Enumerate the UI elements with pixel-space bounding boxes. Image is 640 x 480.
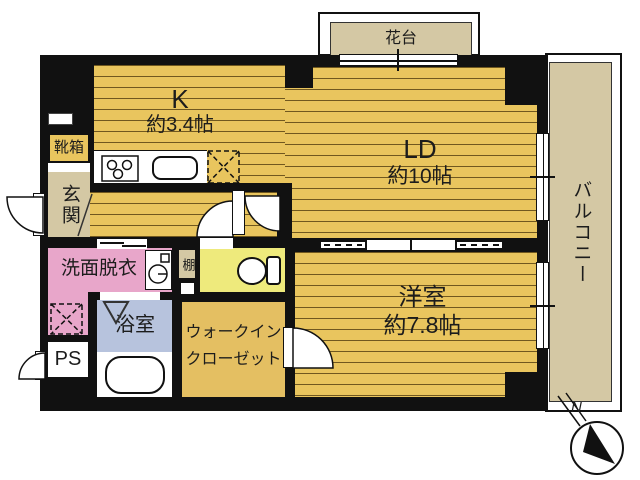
living-dining-name: LD [403, 135, 436, 165]
kitchen-name: K [171, 85, 188, 115]
wall-pillar-top-left [285, 67, 313, 88]
sliding-door-track [460, 244, 499, 246]
compass-icon [552, 388, 640, 480]
shelf-label: 棚 [180, 258, 195, 271]
balcony: バルコニー [549, 62, 612, 402]
refrigerator-space [207, 150, 240, 184]
western-room-size: 約7.8帖 [384, 312, 462, 338]
washroom-door-line-2 [122, 245, 146, 247]
washroom-door-gap [97, 239, 147, 249]
sliding-door-track [324, 244, 362, 246]
window-western-tick [530, 305, 555, 307]
walk-in-closet-line1: ウォークイン [185, 319, 281, 346]
sink-icon [152, 156, 198, 180]
toilet-icon [232, 252, 284, 290]
wall-pillar-top-right [505, 67, 537, 105]
stove-icon [101, 155, 139, 182]
shoe-box: 靴箱 [48, 133, 90, 163]
pipe-space: PS [48, 342, 88, 377]
western-room-name: 洋室 [399, 284, 447, 312]
closet-door-arc [292, 326, 336, 370]
floor-plan: 花台 バルコニー K 約3.4帖 LD 約10帖 玄関 [0, 0, 640, 480]
entrance-top-strip [48, 163, 90, 172]
wall-western-corner [505, 372, 537, 397]
entrance-door-arc [5, 196, 45, 236]
washroom-label: 洗面脱衣 [48, 256, 150, 282]
bath-door-gap [100, 292, 160, 300]
flower-stand: 花台 [330, 22, 472, 56]
walk-in-closet-label: ウォークイン クローゼット [183, 316, 284, 376]
washroom-name: 洗面脱衣 [61, 258, 137, 280]
window-ld-tick [530, 176, 555, 178]
toilet-door-arc [196, 200, 234, 238]
shoe-box-label: 靴箱 [54, 139, 84, 156]
sliding-door-panel-1 [320, 241, 366, 249]
ps-door-arc [17, 351, 47, 381]
wall-niche [48, 113, 73, 125]
bath-door-icon [101, 300, 131, 326]
kitchen-size: 約3.4帖 [146, 114, 214, 137]
sliding-door-panel-4 [456, 241, 503, 249]
living-dining-size: 約10帖 [387, 165, 452, 189]
laundry-space [50, 303, 83, 335]
balcony-label: バルコニー [570, 180, 592, 285]
shelf-box: 棚 [178, 249, 196, 279]
washing-machine-icon [145, 250, 172, 290]
flower-stand-label: 花台 [385, 30, 417, 48]
living-dining-label: LD 約10帖 [330, 130, 510, 194]
sliding-door-panel-2 [366, 239, 411, 251]
pipe-space-label: PS [55, 348, 82, 371]
kitchen-label: K 約3.4帖 [100, 80, 260, 142]
sliding-door-panel-3 [411, 239, 456, 251]
walk-in-closet-line2: クローゼット [185, 346, 281, 373]
western-room-label: 洋室 約7.8帖 [345, 276, 500, 346]
bathtub-icon [105, 356, 165, 394]
entrance-step-line [74, 190, 96, 238]
ld-door-arc [244, 195, 282, 233]
compass-north-label: N [571, 399, 582, 416]
window-top-tick [397, 49, 399, 71]
washroom-door-line-1 [100, 242, 124, 244]
shelf-white-box [181, 283, 194, 294]
toilet-door-gap [200, 238, 233, 249]
